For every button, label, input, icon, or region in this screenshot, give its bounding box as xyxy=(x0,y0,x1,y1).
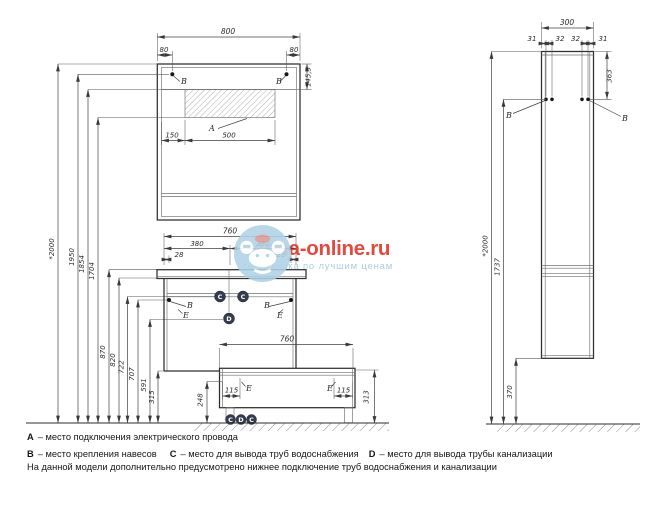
marker-e-label: E xyxy=(276,311,283,320)
legend-line-bcd: B – место крепления навесов C – место дл… xyxy=(27,449,617,459)
marker-c-badge: C xyxy=(241,293,246,301)
watermark: vanna-online.ru сантехника по лучшим цен… xyxy=(234,225,393,272)
electrical-zone-hatch xyxy=(185,90,275,118)
dim-mirror-hinge-left: 80 xyxy=(160,46,169,54)
dim-1854: 1854 xyxy=(78,255,86,273)
dim-col-total-height: *2000 xyxy=(482,235,490,257)
dim-col-32-right: 32 xyxy=(571,35,580,43)
marker-b-label: B xyxy=(186,301,193,310)
marker-b-label: B xyxy=(275,77,282,86)
marker-e-label: E xyxy=(245,384,252,393)
legend-note-text: На данной модели дополнительно предусмот… xyxy=(27,462,497,472)
marker-d-badge: D xyxy=(226,315,232,323)
dim-722: 722 xyxy=(118,360,126,374)
dim-col-32-left: 32 xyxy=(556,35,565,43)
dim-base-edge-right: 115 xyxy=(337,387,351,395)
washbasin-cabinet-front-view: C C D xyxy=(157,270,306,371)
legend-text-b: – место крепления навесов xyxy=(38,449,157,459)
marker-b-label: B xyxy=(263,301,270,310)
dim-vanity-left-half: 380 xyxy=(190,240,204,248)
legend-key-a: A xyxy=(27,432,34,442)
dim-820: 820 xyxy=(109,353,117,367)
mirror-cabinet-front-view xyxy=(157,64,300,220)
dim-total-height: *2000 xyxy=(48,238,56,260)
dim-mirror-width: 800 xyxy=(221,27,236,36)
dim-1704: 1704 xyxy=(88,262,96,280)
technical-drawing-page: 800 80 80 145,5 150 500 A B B *2000 1950… xyxy=(0,0,650,516)
dim-col-1737: 1737 xyxy=(494,258,502,276)
dim-col-370: 370 xyxy=(506,385,514,399)
marker-b-label: B xyxy=(180,77,187,86)
dim-mirror-zone-width: 500 xyxy=(222,132,236,140)
legend-text-a: – место подключения электрического прово… xyxy=(38,432,238,442)
vanna-online-logo-icon xyxy=(234,225,291,282)
dim-707: 707 xyxy=(128,367,136,381)
dim-mirror-zone-offset: 150 xyxy=(165,132,179,140)
legend-line-a: A – место подключения электрического про… xyxy=(27,432,617,442)
legend-text-c: – место для вывода труб водоснабжения xyxy=(180,449,358,459)
legend-key-c: C xyxy=(170,449,177,459)
hanger-point xyxy=(586,98,590,102)
marker-a-label: A xyxy=(208,124,215,133)
dim-mirror-top-height: 145,5 xyxy=(305,66,313,87)
marker-e-label: E xyxy=(182,311,189,320)
dim-base-edge-left: 115 xyxy=(225,387,239,395)
dim-base-width: 760 xyxy=(280,335,295,344)
legend-text-d: – место для вывода трубы канализации xyxy=(379,449,552,459)
hinge-point-right xyxy=(285,72,289,76)
marker-c-badge: C xyxy=(218,293,223,301)
dim-mirror-hinge-right: 80 xyxy=(290,46,299,54)
ground-line-left xyxy=(26,423,389,431)
marker-e-label: E xyxy=(326,384,333,393)
legend-key-d: D xyxy=(369,449,376,459)
dim-591: 591 xyxy=(140,378,148,391)
hanger-point xyxy=(550,98,554,102)
tall-column-side-view xyxy=(513,52,621,359)
dim-col-31-right: 31 xyxy=(599,35,608,43)
legend-note: На данной модели дополнительно предусмот… xyxy=(27,462,617,472)
hinge-point-left xyxy=(170,72,174,76)
dim-column-depth: 300 xyxy=(560,18,575,27)
dim-1950: 1950 xyxy=(68,248,76,266)
dim-base-248: 248 xyxy=(197,393,205,407)
legend-key-b: B xyxy=(27,449,34,459)
dim-vanity-inset-left: 28 xyxy=(175,251,184,259)
dim-col-363: 363 xyxy=(606,69,614,82)
marker-b-label: B xyxy=(621,114,628,123)
dim-col-31-left: 31 xyxy=(528,35,537,43)
ground-line-right xyxy=(486,424,640,432)
dim-base-313: 313 xyxy=(363,390,371,403)
hanger-point xyxy=(580,98,584,102)
marker-b-label: B xyxy=(505,111,512,120)
legend: A – место подключения электрического про… xyxy=(27,432,617,472)
dim-870: 870 xyxy=(99,345,107,359)
dim-315: 315 xyxy=(148,390,156,404)
